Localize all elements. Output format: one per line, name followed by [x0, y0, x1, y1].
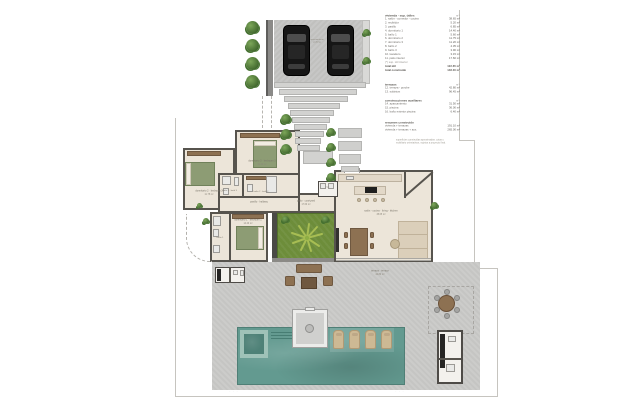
sun-lounger-icon: [365, 330, 376, 349]
glazed-wall: [336, 258, 431, 261]
legend-section: resumen construidovivienda + terrazas191…: [385, 120, 460, 132]
legend-section: vivienda · sup. útilesm²1. salón - comed…: [385, 13, 460, 73]
partition-wall: [229, 267, 231, 283]
car-icon: [327, 25, 354, 76]
bush-icon: [281, 129, 291, 139]
bush-icon: [322, 216, 329, 223]
washer-icon: [320, 183, 326, 189]
legend-section: terrazasm²12. terraza - porche42.80 m²13…: [385, 82, 460, 94]
bush-icon: [246, 75, 259, 88]
entrance-step: [295, 131, 324, 137]
toilet-icon: [240, 270, 244, 276]
kitchen-sink-icon: [346, 176, 354, 180]
bush-icon: [246, 57, 259, 70]
closet: [187, 151, 221, 156]
outdoor-chair: [323, 276, 333, 286]
bush-icon: [281, 144, 291, 154]
stone-paver: [338, 128, 362, 138]
legend-section: construcciones auxiliaresm²14. aparcamie…: [385, 98, 460, 114]
partition-wall: [218, 196, 300, 198]
entrance-step: [284, 96, 348, 102]
bush-icon: [327, 158, 335, 166]
round-chair-icon: [434, 307, 440, 313]
legend-row: 16. baño exterior piscina6.40 m²: [385, 111, 460, 115]
coffee-table: [301, 277, 317, 289]
bush-icon: [246, 21, 259, 34]
entrance-step: [295, 138, 321, 144]
entrance-step: [290, 110, 334, 116]
fire-table-icon: [305, 324, 314, 333]
sofa-icon: [398, 221, 428, 261]
partition-wall: [229, 212, 231, 262]
bush-icon: [203, 218, 209, 224]
round-chair-icon: [444, 289, 450, 295]
closet: [240, 133, 280, 138]
shower-icon: [222, 176, 231, 185]
bush-icon: [281, 114, 291, 124]
dining-table: [350, 228, 368, 256]
entrance-step: [274, 82, 366, 88]
round-chair-icon: [454, 307, 460, 313]
partition-wall: [439, 358, 461, 360]
entrance-step: [279, 89, 357, 95]
spa-jacuzzi: [240, 330, 268, 358]
legend-row: total construido148.30 m²: [385, 69, 460, 73]
bed-pillow: [258, 227, 263, 249]
car-icon: [283, 25, 310, 76]
bush-icon: [246, 39, 259, 52]
round-chair-icon: [444, 313, 450, 319]
sink-icon: [233, 270, 238, 275]
pouf-icon: [390, 239, 400, 249]
garden-wall: [266, 20, 273, 96]
sofa-cushion-line: [398, 248, 428, 249]
stone-paver: [338, 141, 362, 151]
dryer-icon: [328, 183, 334, 189]
area-legend: vivienda · sup. útilesm²1. salón - comed…: [385, 13, 465, 145]
bush-icon: [327, 143, 335, 151]
toilet-icon: [223, 188, 229, 195]
shower-icon: [213, 216, 221, 226]
sun-lounger-icon: [381, 330, 392, 349]
stone-paver: [341, 166, 359, 172]
bush-icon: [431, 202, 438, 209]
bed-pillow: [186, 163, 191, 185]
storage-unit: [446, 364, 455, 372]
entrance-step: [292, 117, 330, 123]
platform-step: [305, 307, 315, 311]
scale-marks: · · ·: [390, 391, 410, 394]
drive-dashed-line: [271, 96, 272, 128]
bush-icon: [327, 173, 335, 181]
bush-icon: [327, 128, 335, 136]
floorplan-canvas: vivienda · sup. útilesm²1. salón - comed…: [0, 0, 631, 404]
bush-icon: [363, 57, 370, 64]
palm-tree-icon: [288, 221, 326, 255]
outdoor-chair: [285, 276, 295, 286]
toilet-icon: [213, 229, 219, 237]
dining-chair: [344, 232, 348, 238]
sun-lounger-icon: [333, 330, 344, 349]
bush-icon: [363, 29, 370, 36]
property-boundary-line: [497, 268, 498, 397]
sofa-cushion-line: [398, 234, 428, 235]
property-boundary-line: [175, 396, 498, 397]
shower-icon: [266, 176, 277, 193]
legend-row: 13. solárium96.45 m²: [385, 91, 460, 95]
outdoor-kitchen-counter: [440, 334, 445, 368]
round-table: [438, 295, 455, 312]
sink-icon: [213, 245, 220, 253]
bush-icon: [282, 216, 289, 223]
partition-wall: [242, 173, 244, 196]
tv-wall: [336, 228, 339, 252]
closet: [232, 214, 264, 219]
round-chair-icon: [434, 295, 440, 301]
round-chair-icon: [454, 295, 460, 301]
dining-chair: [370, 232, 374, 238]
sink-icon: [234, 177, 239, 186]
entrance-step: [294, 124, 327, 130]
outdoor-bath-counter: [217, 269, 221, 281]
dining-chair: [344, 243, 348, 249]
stone-paver: [339, 154, 361, 164]
property-boundary-line: [175, 118, 176, 397]
cooktop-icon: [365, 187, 377, 193]
toilet-icon: [247, 184, 253, 192]
sun-lounger-icon: [349, 330, 360, 349]
sink-icon: [448, 336, 456, 342]
property-boundary-line: [474, 140, 475, 268]
scale-marks: · · ·: [224, 391, 244, 394]
dining-chair: [370, 243, 374, 249]
bed-pillow: [254, 141, 276, 146]
bush-icon: [197, 203, 202, 208]
drive-dashed-line: [262, 96, 263, 128]
entrance-step: [288, 103, 340, 109]
legend-row: vivienda + terrazas + aux.265.00 m²: [385, 128, 460, 132]
outdoor-sofa: [296, 264, 322, 273]
